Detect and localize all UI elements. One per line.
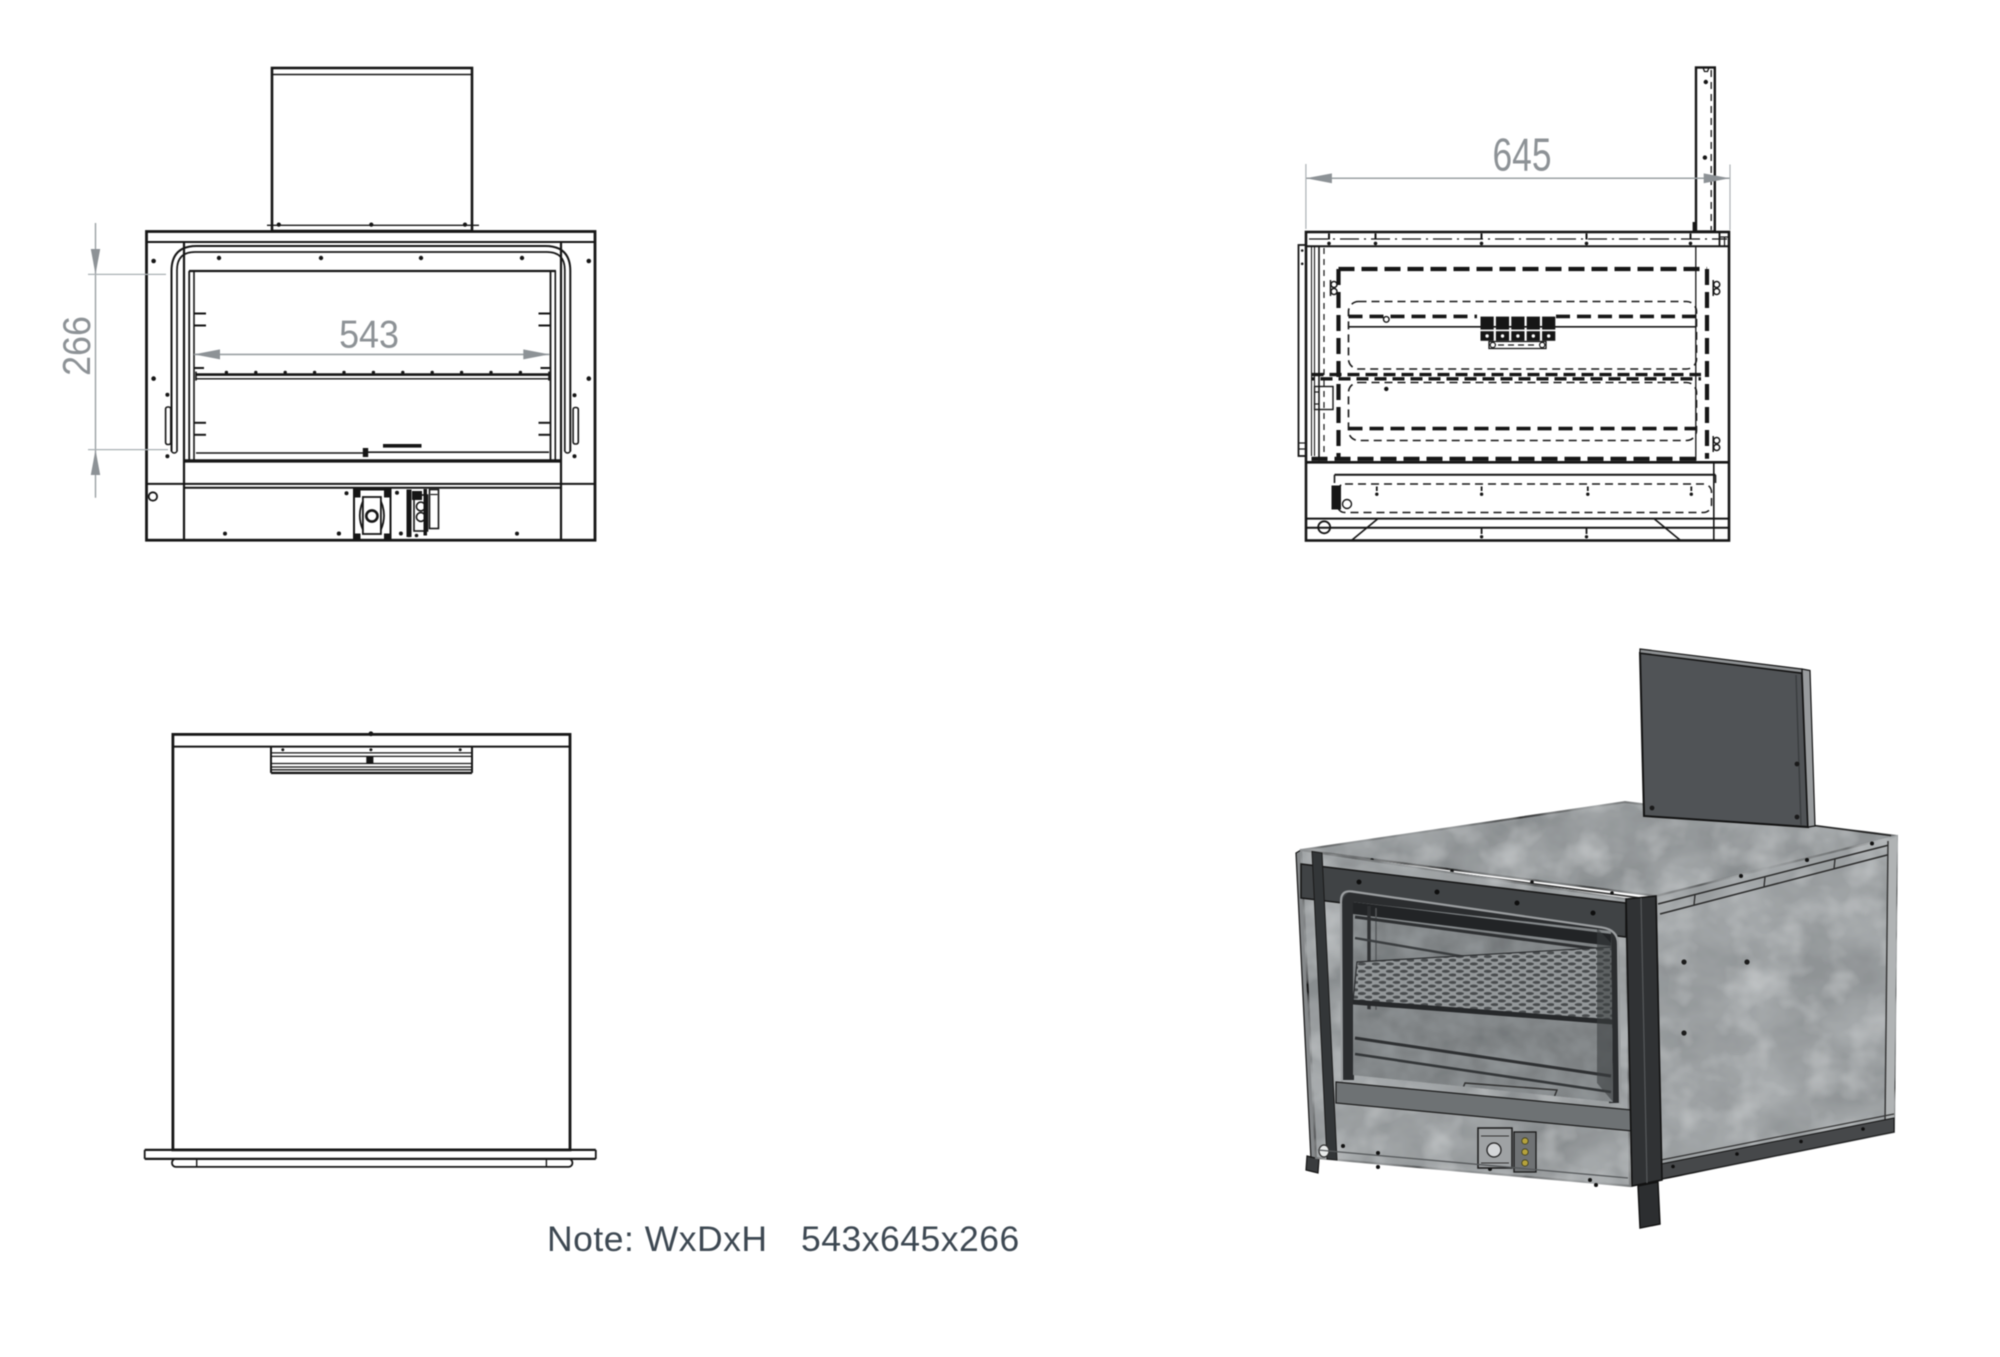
svg-text:266: 266 bbox=[55, 316, 99, 376]
svg-text:543: 543 bbox=[339, 312, 399, 356]
svg-text:645: 645 bbox=[1493, 129, 1552, 181]
